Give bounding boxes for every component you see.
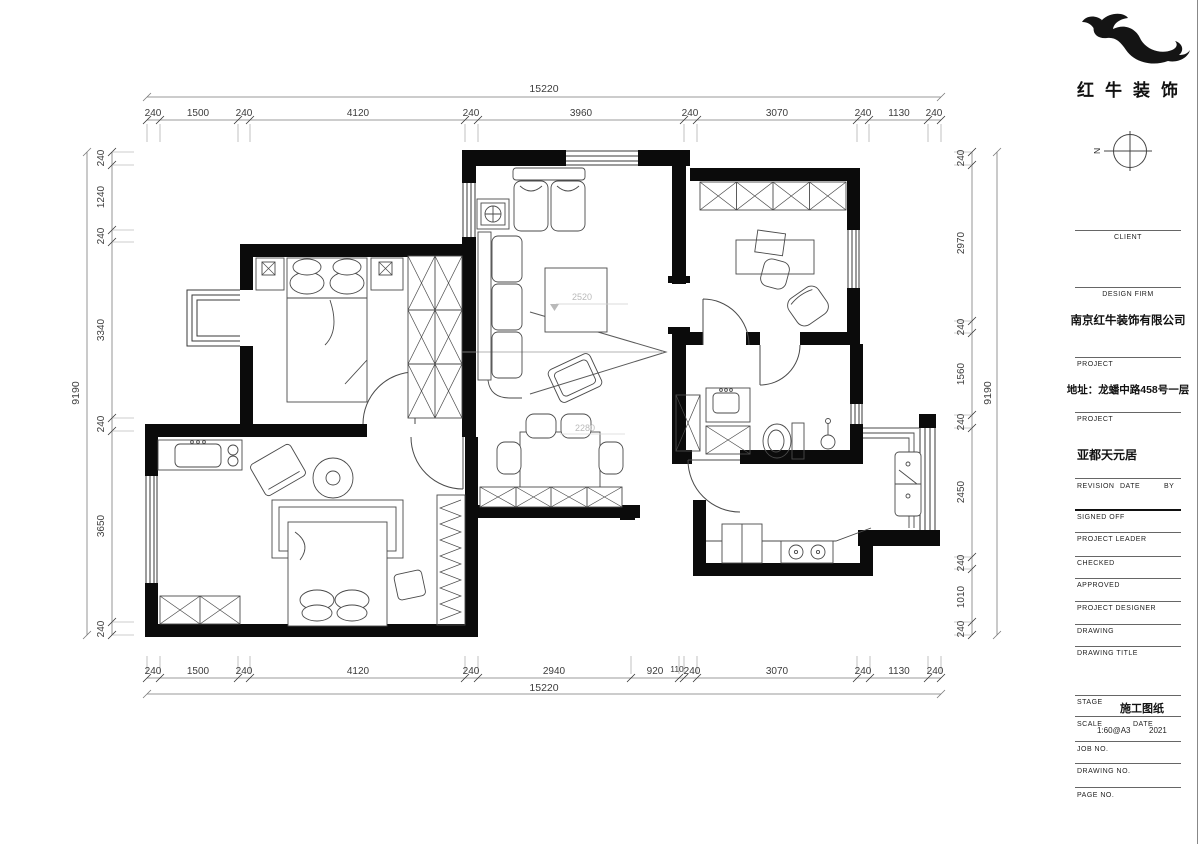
drawing-label: DRAWING bbox=[1077, 628, 1114, 635]
dim-label: 240 bbox=[855, 666, 872, 677]
dining-level-text: 2280 bbox=[575, 423, 595, 433]
dim-label: 2450 bbox=[956, 480, 967, 503]
sheet-right-border bbox=[1197, 0, 1198, 844]
design-firm-label: DESIGN FIRM bbox=[1075, 291, 1181, 298]
tb-rule bbox=[1075, 532, 1181, 533]
bedroom2-wardrobe bbox=[160, 596, 240, 624]
brand-bull-logo bbox=[1072, 10, 1190, 74]
dim-label: 240 bbox=[96, 620, 107, 637]
bedroom2-vanity bbox=[158, 440, 242, 470]
windows bbox=[146, 151, 935, 583]
tb-rule bbox=[1075, 741, 1181, 742]
tb-rule bbox=[1075, 695, 1181, 696]
project-name: 亚都天元居 bbox=[1077, 446, 1137, 463]
approved-label: APPROVED bbox=[1077, 582, 1120, 589]
dim-label: 240 bbox=[236, 666, 253, 677]
dim-label: 240 bbox=[145, 666, 162, 677]
brand-logo-text: 红牛装饰 bbox=[1077, 76, 1189, 101]
tb-rule bbox=[1075, 478, 1181, 479]
tb-rule bbox=[1075, 357, 1181, 358]
dim-label: 240 bbox=[96, 227, 107, 244]
dim-label: 1560 bbox=[956, 362, 967, 385]
dim-label: 240 bbox=[96, 149, 107, 166]
tb-rule bbox=[1075, 716, 1181, 717]
job-no-label: JOB NO. bbox=[1077, 746, 1109, 753]
dim-label: 110 bbox=[670, 664, 684, 674]
dim-label: 240 bbox=[927, 666, 944, 677]
project-label-2: PROJECT bbox=[1077, 416, 1113, 423]
dim-label: 1240 bbox=[96, 185, 107, 208]
drawing-no-label: DRAWING NO. bbox=[1077, 768, 1130, 775]
dim-label: 240 bbox=[855, 108, 872, 119]
bedroom2-bed bbox=[272, 500, 426, 626]
dim-top-total: 15220 bbox=[529, 83, 558, 95]
signed-off-label: SIGNED OFF bbox=[1077, 514, 1125, 521]
revision-date-label: DATE bbox=[1120, 483, 1140, 490]
study-wardrobe bbox=[700, 182, 846, 210]
drawing-title-label: DRAWING TITLE bbox=[1077, 650, 1138, 657]
dim-label: 240 bbox=[956, 149, 967, 166]
dim-label: 3070 bbox=[766, 666, 789, 677]
dim-label: 240 bbox=[96, 415, 107, 432]
checked-label: CHECKED bbox=[1077, 560, 1115, 567]
compass-n-label: N bbox=[1092, 148, 1102, 154]
dim-label: 3070 bbox=[766, 108, 789, 119]
revision-by-label: BY bbox=[1164, 483, 1174, 490]
project-address: 地址：龙蟠中路458号一层 bbox=[1056, 382, 1200, 397]
project-leader-label: PROJECT LEADER bbox=[1077, 536, 1147, 543]
coffee-table bbox=[545, 268, 607, 404]
dim-label: 240 bbox=[956, 318, 967, 335]
dim-label: 240 bbox=[926, 108, 943, 119]
dim-label: 240 bbox=[956, 620, 967, 637]
tb-rule bbox=[1075, 287, 1181, 288]
furniture bbox=[158, 168, 921, 626]
drawing-sheet: { "branding": { "logo_text": "红牛装饰", "co… bbox=[0, 0, 1200, 844]
tb-rule bbox=[1075, 578, 1181, 579]
tb-rule bbox=[1075, 509, 1181, 511]
study-desk bbox=[736, 230, 832, 329]
tb-rule bbox=[1075, 601, 1181, 602]
dim-label: 240 bbox=[684, 666, 701, 677]
dim-label: 3960 bbox=[570, 108, 593, 119]
dim-label: 240 bbox=[956, 413, 967, 430]
dim-label: 1010 bbox=[956, 585, 967, 608]
dim-label: 240 bbox=[682, 108, 699, 119]
dim-label: 240 bbox=[145, 108, 162, 119]
page-no-label: PAGE NO. bbox=[1077, 792, 1114, 799]
bedroom1-bed bbox=[249, 258, 403, 498]
dim-label: 3340 bbox=[96, 318, 107, 341]
dim-label: 1130 bbox=[888, 666, 910, 677]
project-label-1: PROJECT bbox=[1077, 361, 1113, 368]
dim-label: 1500 bbox=[187, 108, 210, 119]
stage-label: STAGE bbox=[1077, 699, 1103, 706]
dim-right-total: 9190 bbox=[982, 381, 994, 405]
floor-plan: 2520 2280 15220 240 1500 240 4120 240 39… bbox=[0, 0, 1060, 844]
walls bbox=[145, 150, 940, 637]
tb-rule bbox=[1075, 646, 1181, 647]
date-value: 2021 bbox=[1149, 726, 1167, 735]
dim-label: 240 bbox=[236, 108, 253, 119]
dim-label: 1500 bbox=[187, 666, 210, 677]
dim-label: 4120 bbox=[347, 666, 370, 677]
bedroom2-closet bbox=[437, 495, 465, 625]
north-compass-icon: N bbox=[1090, 126, 1170, 176]
stage-value: 施工图纸 bbox=[1120, 700, 1164, 716]
project-designer-label: PROJECT DESIGNER bbox=[1077, 605, 1156, 612]
dim-bottom-total: 15220 bbox=[529, 682, 558, 694]
dim-label: 920 bbox=[647, 666, 664, 677]
dim-label: 240 bbox=[463, 108, 480, 119]
tb-rule bbox=[1075, 230, 1181, 231]
dim-label: 240 bbox=[463, 666, 480, 677]
living-level-text: 2520 bbox=[572, 292, 592, 302]
dim-label: 2970 bbox=[956, 231, 967, 254]
bedroom1-wardrobe bbox=[408, 256, 462, 418]
dim-label: 1130 bbox=[888, 108, 910, 119]
utility-cabinets bbox=[676, 388, 750, 454]
dim-label: 3650 bbox=[96, 514, 107, 537]
tb-rule bbox=[1075, 556, 1181, 557]
tb-rule bbox=[1075, 624, 1181, 625]
dimension-lines bbox=[83, 93, 1001, 698]
tb-rule bbox=[1075, 412, 1181, 413]
design-firm-value: 南京红牛装饰有限公司 bbox=[1063, 312, 1193, 328]
client-label: CLIENT bbox=[1075, 234, 1181, 241]
dim-left-total: 9190 bbox=[70, 381, 82, 405]
tb-rule bbox=[1075, 787, 1181, 788]
dining-set bbox=[480, 414, 623, 507]
revision-label: REVISION bbox=[1077, 483, 1114, 490]
dim-label: 4120 bbox=[347, 108, 370, 119]
dim-label: 2940 bbox=[543, 666, 566, 677]
living-ac-unit bbox=[477, 199, 509, 229]
scale-value: 1:60@A3 bbox=[1097, 726, 1130, 735]
tb-rule bbox=[1075, 763, 1181, 764]
dim-label: 240 bbox=[956, 554, 967, 571]
